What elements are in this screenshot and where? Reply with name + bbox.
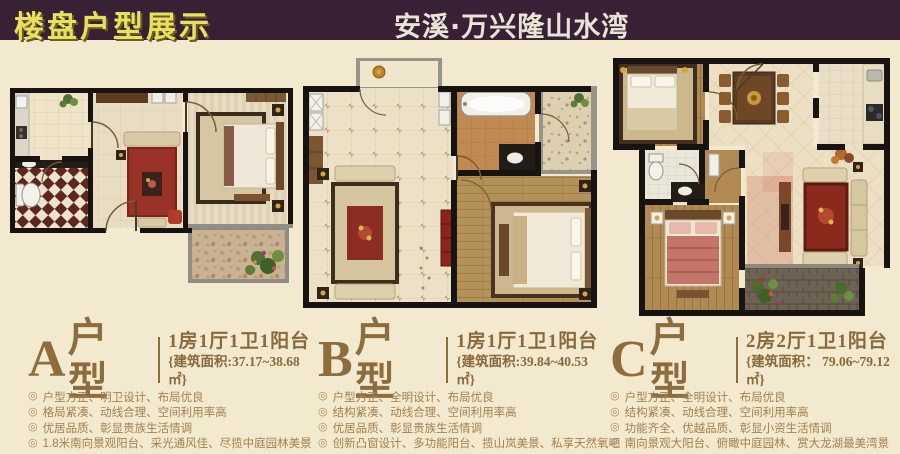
bullet-icon: ◎ [28, 407, 38, 418]
unit-b-features: ◎户型方正、全明设计、布局优良 ◎结构紧凑、动线合理、空间利用率高 ◎优居品质、… [318, 389, 606, 451]
bullet-icon: ◎ [318, 422, 328, 433]
unit-c-letter: C [610, 338, 648, 382]
divider [446, 337, 448, 383]
feature-item: ◎格局紧凑、动线合理、空间利用率高 [28, 405, 316, 421]
unit-a-features: ◎户型方正、明卫设计、布局优良 ◎格局紧凑、动线合理、空间利用率高 ◎优居品质、… [28, 389, 316, 451]
project-name: 安溪·万兴隆山水湾 [394, 5, 629, 44]
bedroom-1 [617, 62, 705, 146]
bathroom [14, 160, 90, 228]
bullet-icon: ◎ [610, 438, 620, 449]
unit-a-area: {建筑面积:37.17~38.68㎡} [168, 353, 316, 389]
bathroom [457, 90, 535, 174]
feature-item: ◎优居品质、彰显贵族生活情调 [318, 420, 606, 436]
kitchen [14, 92, 90, 160]
feature-item: ◎户型方正、明卫设计、布局优良 [28, 389, 316, 405]
unit-c-area: {建筑面积： 79.06~79.12㎡} [746, 353, 898, 389]
floor-plan-b [303, 58, 597, 308]
bathtub-icon [461, 92, 531, 116]
feature-item: ◎1.8米南向景观阳台、采光通风佳、尽揽中庭园林美景 [28, 436, 316, 452]
unit-a-title: A 户型 1房1厅1卫1阳台 {建筑面积:37.17~38.68㎡} [28, 336, 316, 384]
unit-a-spec: 1房1厅1卫1阳台 [168, 331, 316, 353]
unit-block-c: C 户型 2房2厅1卫1阳台 {建筑面积： 79.06~79.12㎡} ◎户型方… [610, 336, 898, 451]
dining-table-icon [719, 72, 789, 124]
unit-c-spec: 2房2厅1卫1阳台 [746, 331, 898, 353]
unit-b-area: {建筑面积:39.84~40.53㎡} [456, 353, 606, 389]
unit-block-b: B 户型 1房1厅1卫1阳台 {建筑面积:39.84~40.53㎡} ◎户型方正… [318, 336, 606, 451]
feature-item: ◎南向景观大阳台、俯瞰中庭园林、赏大龙湖最美湾景 [610, 436, 898, 452]
feature-item: ◎户型方正、全明设计、布局优良 [318, 389, 606, 405]
feature-item: ◎户型方正、全明设计、布局优良 [610, 389, 898, 405]
balcony [190, 228, 287, 281]
divider [736, 337, 738, 383]
unit-c-features: ◎户型方正、全明设计、布局优良 ◎结构紧凑、动线合理、空间利用率高 ◎功能齐全、… [610, 389, 898, 451]
feature-item: ◎结构紧凑、动线合理、空间利用率高 [610, 405, 898, 421]
bedroom [457, 176, 593, 304]
unit-b-title: B 户型 1房1厅1卫1阳台 {建筑面积:39.84~40.53㎡} [318, 336, 606, 384]
header-bar: 楼盘户型展示 安溪·万兴隆山水湾 [0, 0, 900, 40]
toilet-icon [649, 154, 663, 180]
bedroom-2 [645, 205, 739, 310]
divider [158, 337, 160, 383]
bullet-icon: ◎ [610, 407, 620, 418]
kitchen [819, 62, 886, 146]
bullet-icon: ◎ [318, 391, 328, 402]
dining-room [709, 62, 813, 146]
toilet-icon [16, 183, 40, 207]
bullet-icon: ◎ [28, 391, 38, 402]
bay-window [358, 59, 440, 89]
feature-item: ◎结构紧凑、动线合理、空间利用率高 [318, 405, 606, 421]
page-title: 楼盘户型展示 [14, 2, 212, 46]
bathroom [645, 150, 705, 203]
feature-item: ◎优居品质、彰显贵族生活情调 [28, 420, 316, 436]
hallway [705, 150, 741, 203]
living-room [307, 88, 453, 304]
bullet-icon: ◎ [28, 438, 38, 449]
bedroom [188, 92, 287, 224]
unit-a-letter: A [28, 338, 66, 382]
bullet-icon: ◎ [318, 407, 328, 418]
bullet-icon: ◎ [28, 422, 38, 433]
feature-item: ◎功能齐全、优越品质、彰显小资生活情调 [610, 420, 898, 436]
living-room [745, 146, 886, 268]
bed-icon [627, 66, 677, 130]
bullet-icon: ◎ [610, 422, 620, 433]
bed-icon [665, 210, 721, 298]
bullet-icon: ◎ [610, 391, 620, 402]
balcony [745, 264, 859, 314]
bed-icon [499, 208, 593, 292]
page: 楼盘户型展示 安溪·万兴隆山水湾 [0, 0, 900, 454]
bullet-icon: ◎ [318, 438, 328, 449]
balcony [541, 88, 595, 172]
unit-b-spec: 1房1厅1卫1阳台 [456, 331, 606, 353]
floor-plan-a [10, 88, 293, 285]
unit-b-letter: B [318, 338, 353, 382]
floor-plan-c [613, 58, 890, 320]
unit-block-a: A 户型 1房1厅1卫1阳台 {建筑面积:37.17~38.68㎡} ◎户型方正… [28, 336, 316, 451]
feature-item: ◎创新凸窗设计、多功能阳台、揽山岚美景、私享天然氧吧 [318, 436, 606, 452]
unit-c-title: C 户型 2房2厅1卫1阳台 {建筑面积： 79.06~79.12㎡} [610, 336, 898, 384]
